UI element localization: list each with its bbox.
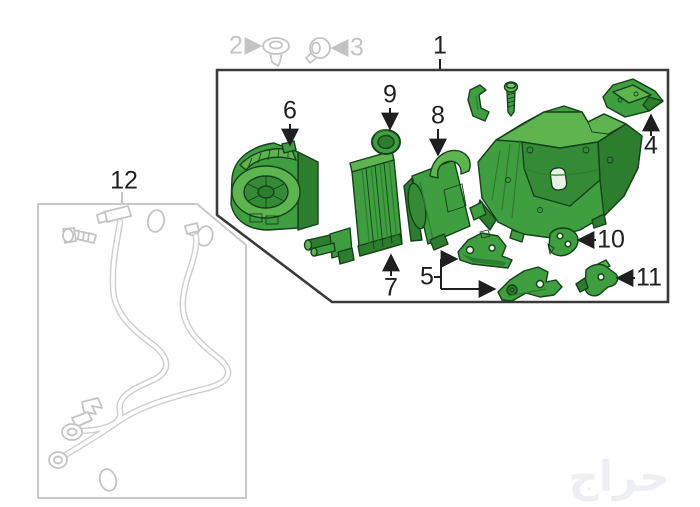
callout-10-label: 10	[597, 226, 625, 255]
callout-4-label: 4	[644, 132, 658, 161]
grommet-icon	[263, 38, 289, 66]
diagram-artwork	[0, 0, 700, 507]
callout-2-label: 2	[229, 32, 243, 61]
callout-3-label: 3	[350, 34, 364, 63]
callout-6-label: 6	[283, 97, 297, 126]
callout-11-label: 11	[636, 264, 662, 293]
callout-8-label: 8	[431, 102, 445, 131]
callout-7-label: 7	[384, 274, 398, 303]
push-pin-icon	[306, 38, 330, 63]
callout-1-label: 1	[433, 32, 447, 61]
callout-12-label: 12	[110, 167, 138, 196]
watermark-text: حراج	[538, 452, 700, 504]
parts-diagram: 1 2 3 4 5 6 7 8 9 10 11 12 حراج	[0, 0, 700, 507]
grommet-part	[372, 130, 400, 154]
callout-9-label: 9	[383, 81, 397, 110]
hose-kit-box	[38, 204, 246, 498]
callout-5-label: 5	[420, 263, 434, 292]
